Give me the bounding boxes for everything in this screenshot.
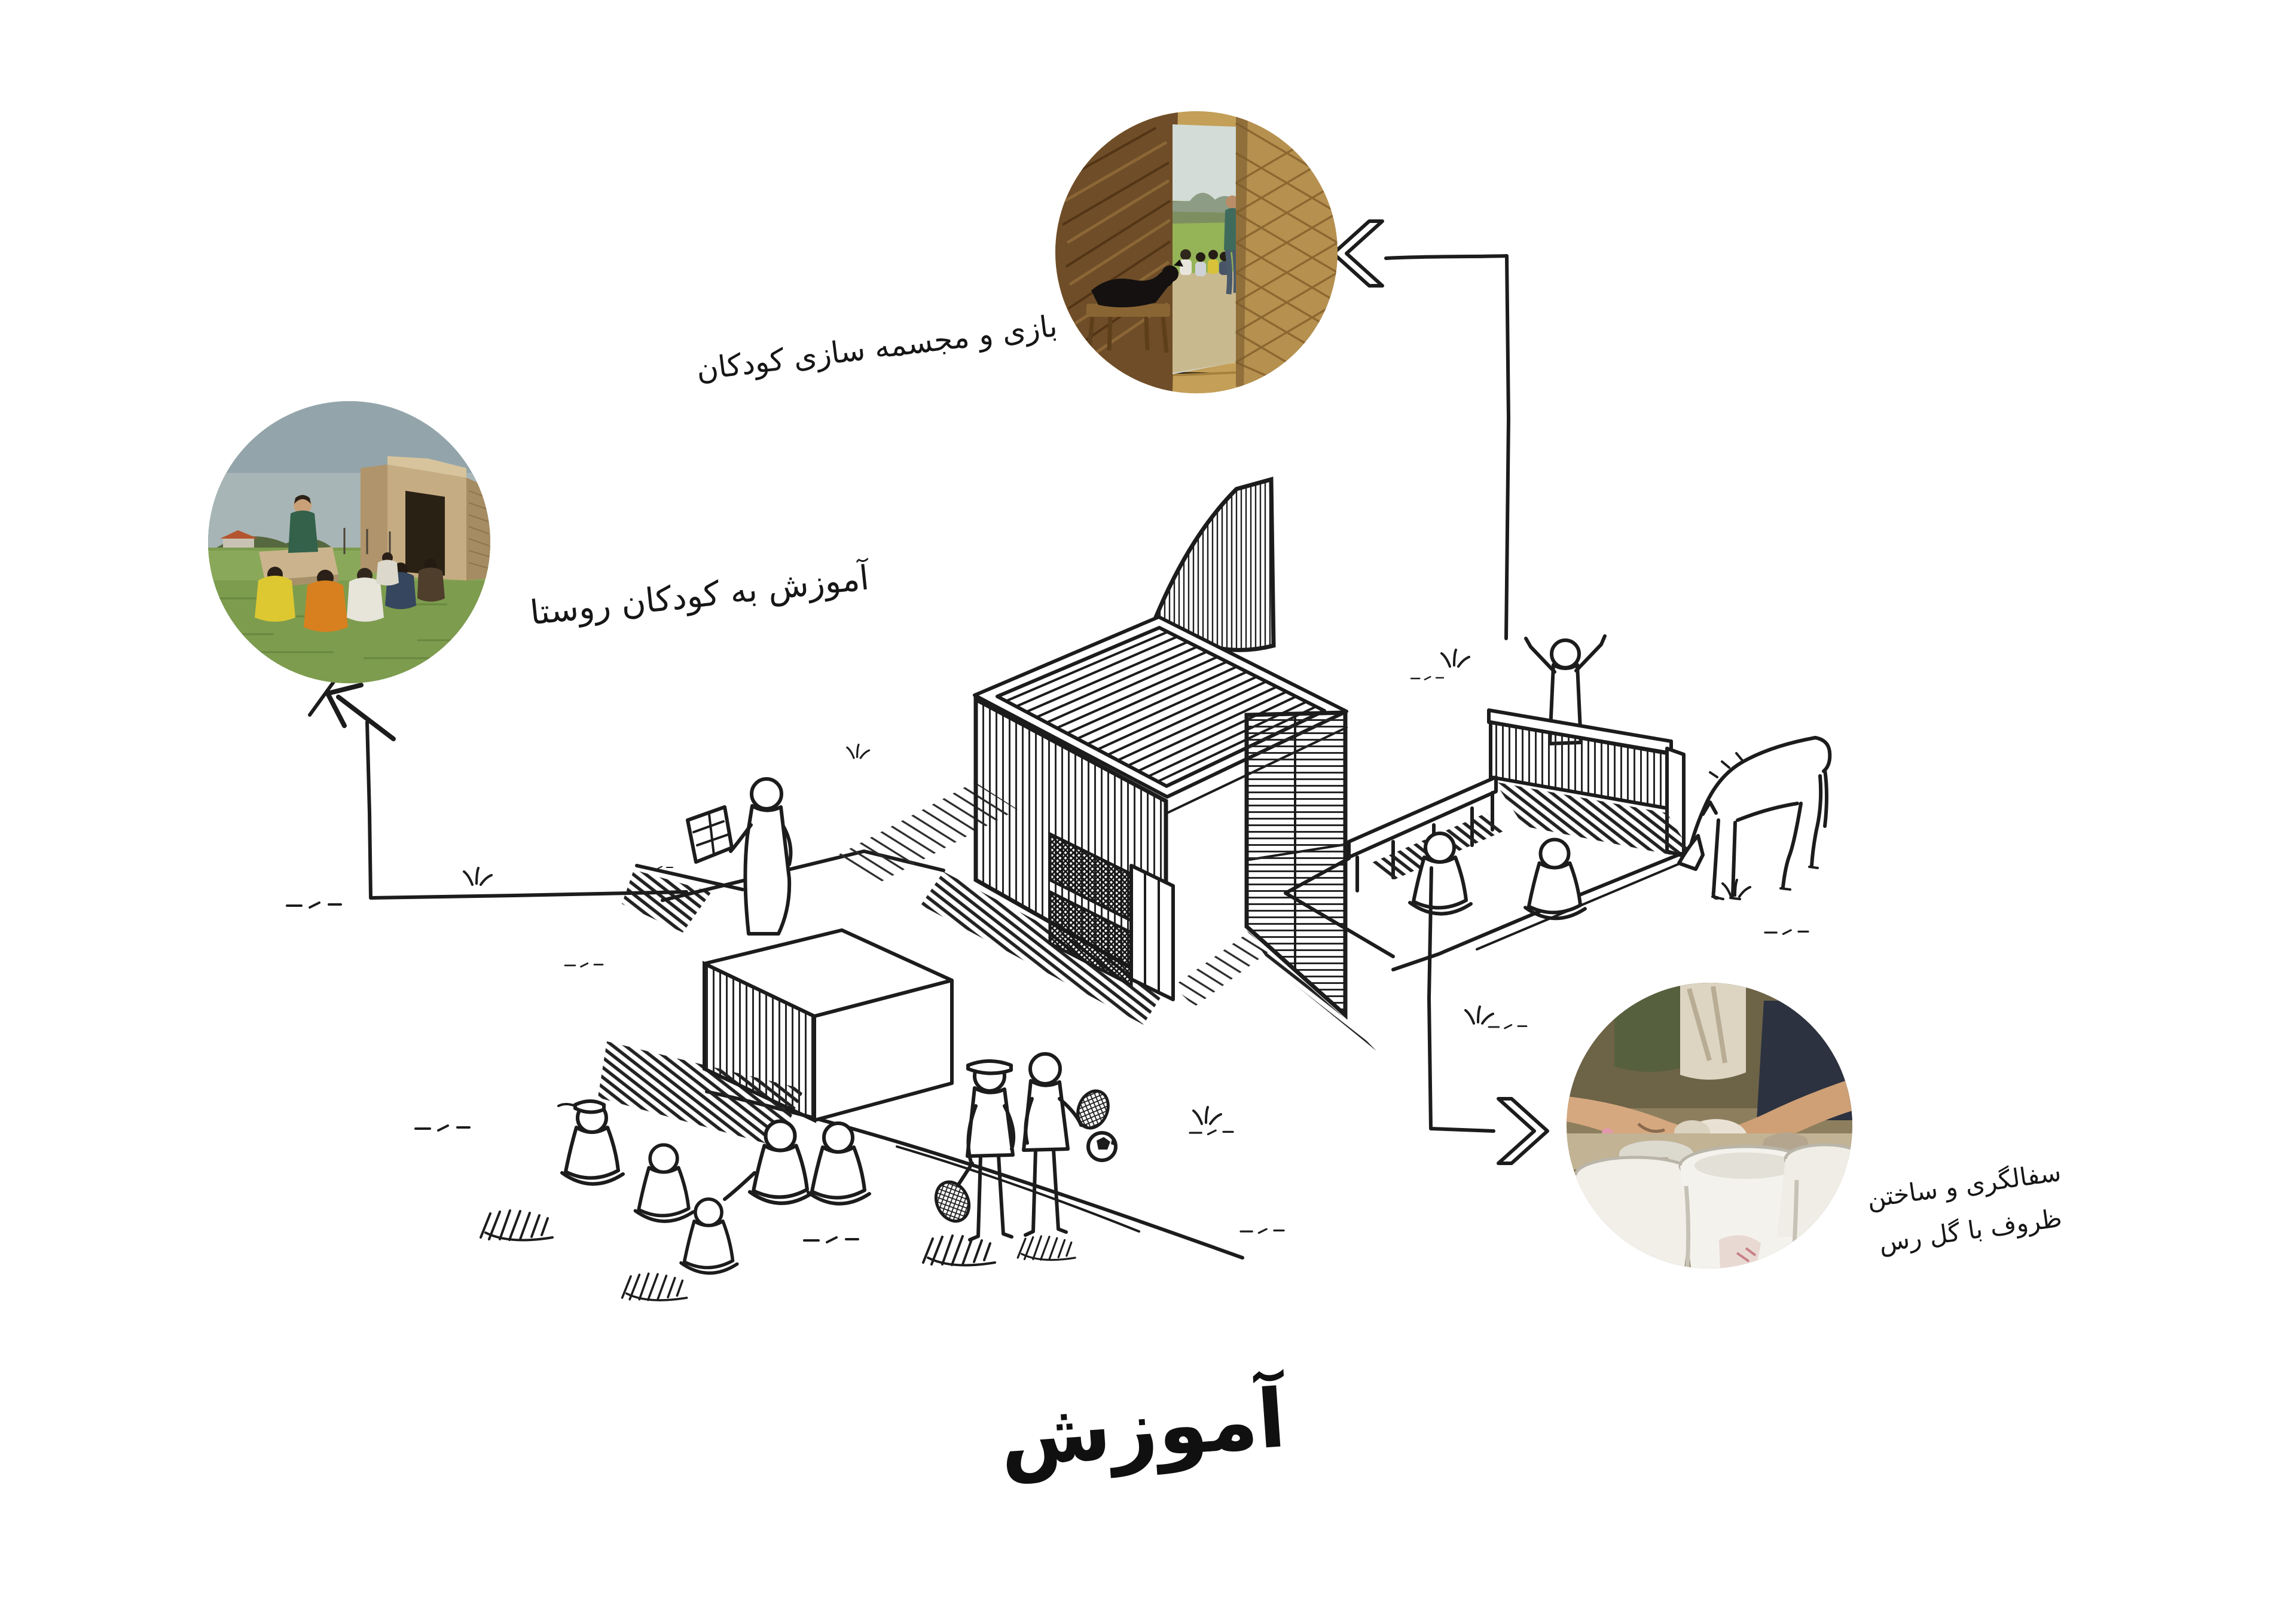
- children-play-photo-art: [1055, 111, 1338, 393]
- village-class-photo-art: [208, 401, 490, 683]
- children-play-photo: [1055, 111, 1338, 393]
- pottery-workshop-photo: [1567, 983, 1852, 1269]
- village-class-photo: [208, 401, 490, 683]
- lectern-block: [598, 930, 952, 1147]
- pavilion-building: [921, 479, 1376, 1051]
- soccer-ball: [1088, 1133, 1116, 1160]
- pottery-workshop-photo-art: [1567, 983, 1852, 1269]
- connector-play: [1333, 221, 1509, 638]
- reading-figure: [688, 779, 790, 934]
- chevron-left-icon: [1333, 221, 1382, 286]
- horse-sketch: [1679, 738, 1830, 899]
- diagram-title: آموزش: [1007, 1371, 1289, 1484]
- concept-diagram-canvas: بازی و مجسمه سازی کودکان آموزش به کودکان…: [0, 0, 2296, 1623]
- arrow-up-left-icon: [310, 680, 393, 739]
- chevron-right-icon: [1498, 1099, 1547, 1163]
- connector-village: [310, 680, 686, 898]
